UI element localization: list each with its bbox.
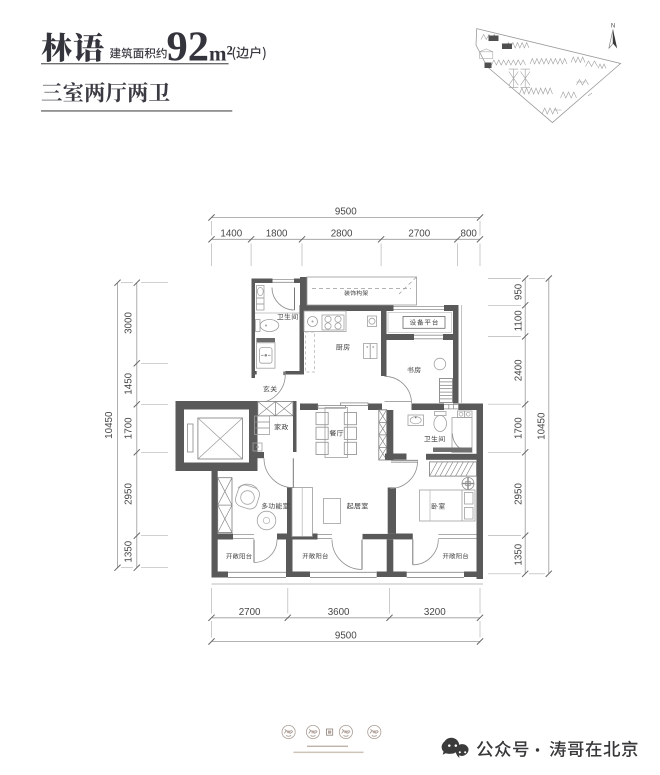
svg-text:2700: 2700 — [239, 607, 261, 618]
svg-text:1350: 1350 — [513, 543, 524, 565]
svg-text:2800: 2800 — [331, 228, 353, 239]
svg-text:9500: 9500 — [335, 207, 357, 218]
svg-text:1350: 1350 — [124, 540, 135, 562]
svg-text:1800: 1800 — [266, 228, 288, 239]
svg-text:1400: 1400 — [220, 228, 242, 239]
svg-text:2950: 2950 — [513, 483, 524, 505]
svg-text:1100: 1100 — [513, 310, 524, 332]
svg-text:950: 950 — [513, 283, 524, 300]
svg-text:800: 800 — [461, 228, 478, 239]
svg-text:3200: 3200 — [424, 607, 446, 618]
svg-text:1700: 1700 — [513, 417, 524, 439]
svg-text:3000: 3000 — [124, 312, 135, 334]
svg-text:2700: 2700 — [408, 228, 430, 239]
svg-text:1700: 1700 — [124, 417, 135, 439]
svg-text:10450: 10450 — [104, 411, 115, 439]
svg-text:1450: 1450 — [124, 372, 135, 394]
svg-text:2400: 2400 — [513, 359, 524, 381]
svg-text:3600: 3600 — [328, 607, 350, 618]
svg-text:10450: 10450 — [537, 412, 548, 440]
svg-text:2950: 2950 — [124, 483, 135, 505]
svg-text:N: N — [611, 24, 615, 30]
svg-text:9500: 9500 — [335, 630, 357, 641]
